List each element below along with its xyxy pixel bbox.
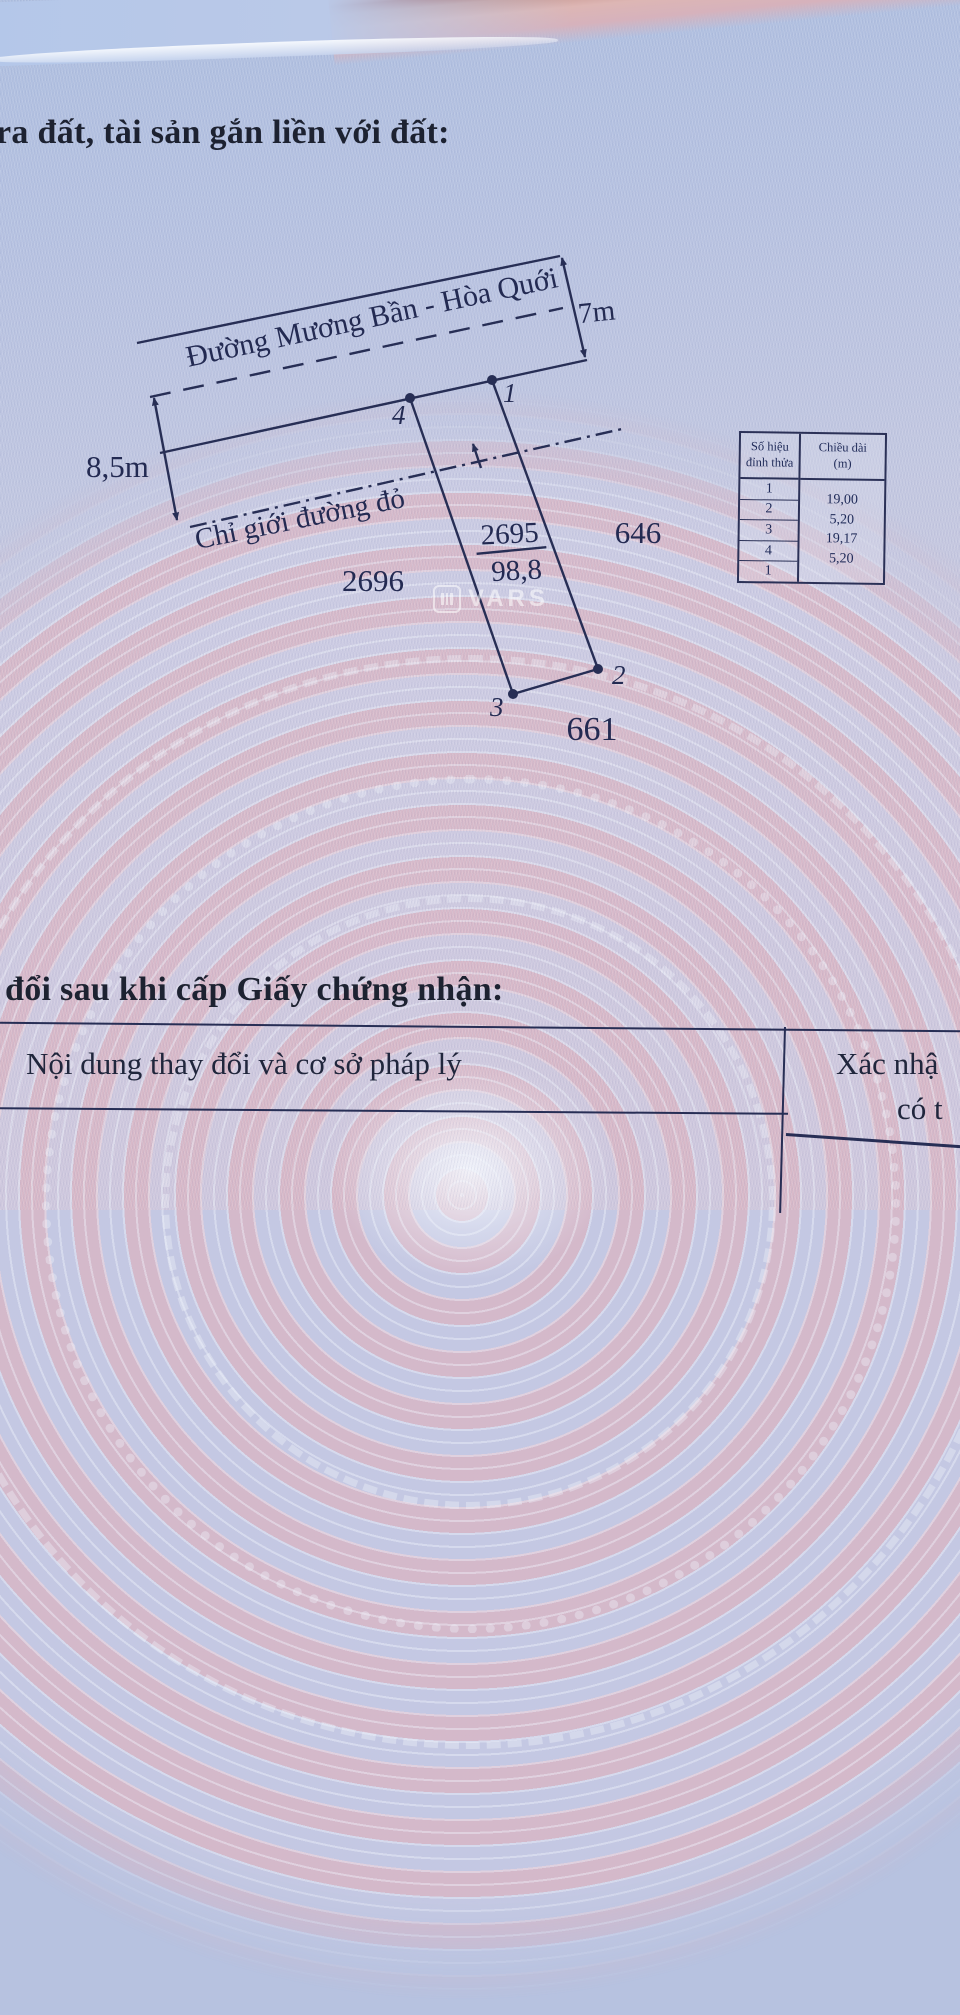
changes-col2-header-line2: có t [897,1091,943,1127]
vars-logo-icon [433,585,461,613]
changes-col2-header-line1: Xác nhậ [836,1046,938,1082]
length-column-header: Chiều dài (m) [800,434,885,481]
vertex-length-table: Số hiệu đỉnh thửa 1 2 3 4 1 Chiều dài (m… [737,431,887,585]
watermark: VARS [433,585,549,613]
length-value: 5,20 [799,550,883,569]
vertex-dot-2 [593,664,603,674]
length-values: 19,00 5,20 19,17 5,20 [799,480,884,583]
setback-arrow [154,398,177,520]
vertex-label-3: 3 [489,692,504,722]
logo-bar [450,593,453,605]
vertex-header-line1: Số hiệu [751,440,789,456]
road-width-label: 7m [576,294,617,330]
red-boundary-label: Chỉ giới đường đỏ [192,482,407,556]
changes-col1-header: Nội dung thay đổi và cơ sở pháp lý [26,1046,462,1082]
vertex-dot-1 [487,375,497,385]
neighbor-parcel-west-label: 2696 [342,563,404,598]
length-header-line1: Chiều dài [819,440,867,456]
length-value: 19,17 [799,530,883,549]
frontage-line [160,360,587,453]
setback-label: 8,5m [86,449,149,484]
road-name-label: Đường Mương Bần - Hòa Quới [183,261,561,373]
vertex-label-4: 4 [392,400,406,430]
neighbor-parcel-east-label: 646 [615,515,662,550]
vertex-dot-3 [508,689,518,699]
vertex-label-1: 1 [503,378,517,408]
vertex-column: Số hiệu đỉnh thửa 1 2 3 4 1 [739,433,801,582]
north-arrow-icon [473,444,481,468]
table-row: 2 [740,500,798,521]
table-row: 1 [740,479,798,500]
watermark-text: VARS [468,585,549,613]
parcel-number-label: 2695 [480,517,540,552]
length-value: 19,00 [800,491,884,510]
table-row: 4 [739,541,797,562]
vertex-rows: 1 2 3 4 1 [739,479,798,582]
neighbor-parcel-south-label: 661 [567,711,618,748]
vertex-header-line2: đỉnh thửa [746,455,794,471]
vertex-label-2: 2 [612,660,626,690]
logo-bar [446,593,449,605]
length-header-line2: (m) [833,456,851,472]
vertex-column-header: Số hiệu đỉnh thửa [740,433,799,480]
parcel-number-area-fraction: 2695 98,8 [475,516,549,589]
section-heading-bottom: đổi sau khi cấp Giấy chứng nhận: [5,971,504,1009]
certificate-scan-page: { "document": { "section_heading_top": "… [0,0,960,1210]
length-value: 5,20 [800,511,884,530]
vertex-dot-4 [405,393,415,403]
table-row: 1 [739,561,797,581]
parcel-area-label: 98,8 [490,553,542,588]
length-column: Chiều dài (m) 19,00 5,20 19,17 5,20 [799,434,885,583]
table-row: 3 [740,520,798,541]
logo-bar [441,593,444,605]
